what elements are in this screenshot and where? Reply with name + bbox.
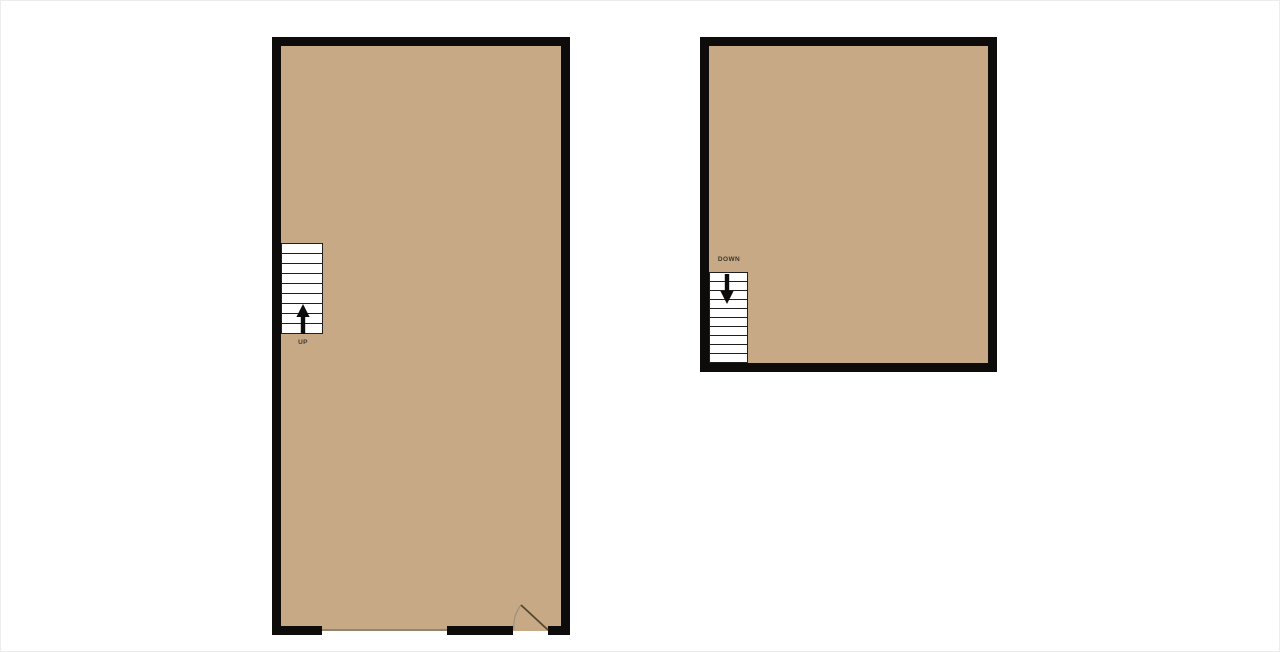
floorplan-canvas: UP DOWN — [0, 0, 1280, 652]
stair-tread — [282, 284, 322, 294]
stair-tread — [710, 318, 747, 327]
bottom-wall-segment-middle — [447, 626, 513, 635]
wall-opening-threshold-line — [322, 629, 447, 631]
stair-tread — [710, 345, 747, 354]
stair-tread — [710, 336, 747, 345]
bottom-wall-segment-left — [272, 626, 322, 635]
symbols-overlay — [0, 0, 1280, 652]
stairs-up-label: UP — [289, 339, 317, 347]
stair-tread — [710, 273, 747, 282]
bottom-wall-segment-right — [548, 626, 570, 635]
stair-tread — [282, 254, 322, 264]
stair-tread — [282, 264, 322, 274]
stair-tread — [710, 327, 747, 336]
stair-tread — [282, 244, 322, 254]
stair-tread — [282, 324, 322, 333]
stairs-down-label: DOWN — [709, 256, 749, 264]
stair-tread — [710, 300, 747, 309]
stair-tread — [710, 354, 747, 362]
stair-tread — [282, 274, 322, 284]
stair-tread — [710, 309, 747, 318]
doorway-floor-fill — [513, 626, 548, 631]
staircase-up — [281, 243, 323, 334]
stair-tread — [282, 294, 322, 304]
stair-tread — [282, 314, 322, 324]
stair-tread — [710, 291, 747, 300]
staircase-down — [709, 272, 748, 363]
stair-tread — [282, 304, 322, 314]
stair-tread — [710, 282, 747, 291]
